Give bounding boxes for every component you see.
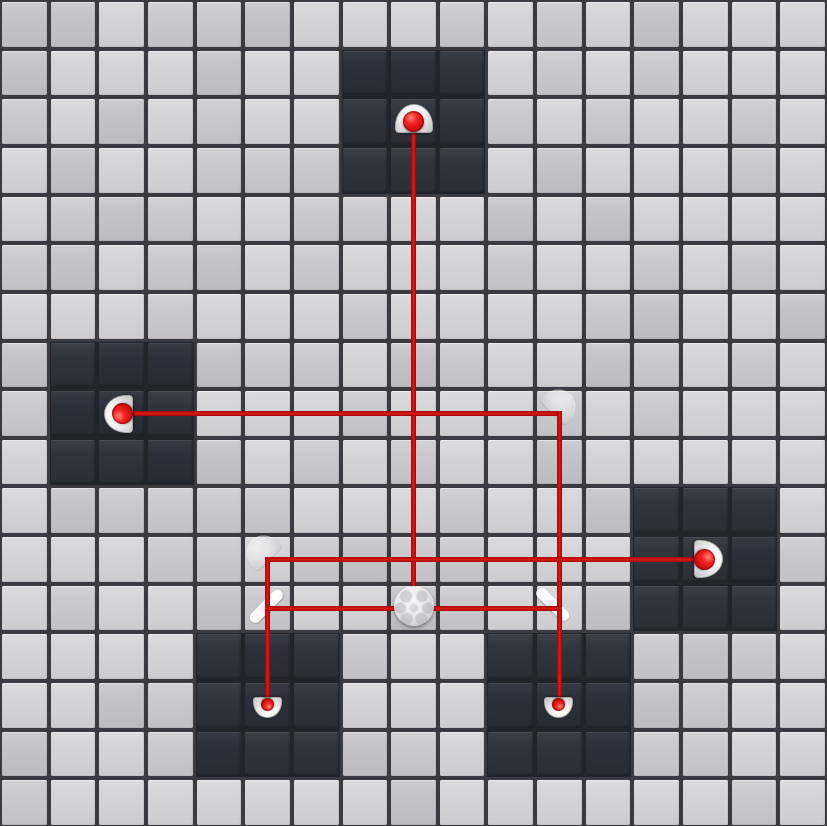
grid-tile[interactable] <box>148 780 193 825</box>
grid-tile[interactable] <box>99 99 144 144</box>
grid-tile[interactable] <box>2 732 47 777</box>
grid-tile[interactable] <box>343 197 388 242</box>
dark-grid-tile[interactable] <box>99 343 144 388</box>
grid-tile[interactable] <box>780 148 825 193</box>
grid-tile[interactable] <box>99 683 144 728</box>
grid-tile[interactable] <box>343 683 388 728</box>
grid-tile[interactable] <box>294 488 339 533</box>
grid-tile[interactable] <box>51 2 96 47</box>
grid-tile[interactable] <box>51 732 96 777</box>
grid-tile[interactable] <box>51 245 96 290</box>
grid-tile[interactable] <box>51 294 96 339</box>
dark-grid-tile[interactable] <box>294 683 339 728</box>
grid-tile[interactable] <box>488 245 533 290</box>
grid-tile[interactable] <box>780 488 825 533</box>
grid-tile[interactable] <box>245 2 290 47</box>
grid-tile[interactable] <box>294 294 339 339</box>
grid-tile[interactable] <box>148 294 193 339</box>
grid-tile[interactable] <box>683 732 728 777</box>
grid-tile[interactable] <box>732 245 777 290</box>
grid-tile[interactable] <box>732 148 777 193</box>
grid-tile[interactable] <box>245 440 290 485</box>
grid-tile[interactable] <box>634 732 679 777</box>
grid-tile[interactable] <box>488 343 533 388</box>
dark-grid-tile[interactable] <box>488 732 533 777</box>
grid-tile[interactable] <box>586 245 631 290</box>
grid-tile[interactable] <box>634 148 679 193</box>
grid-tile[interactable] <box>343 294 388 339</box>
grid-tile[interactable] <box>51 586 96 631</box>
grid-tile[interactable] <box>51 537 96 582</box>
laser-lens <box>111 403 132 424</box>
dark-grid-tile[interactable] <box>732 488 777 533</box>
grid-tile[interactable] <box>683 197 728 242</box>
grid-tile[interactable] <box>245 780 290 825</box>
dark-grid-tile[interactable] <box>732 537 777 582</box>
grid-tile[interactable] <box>197 197 242 242</box>
grid-tile[interactable] <box>586 197 631 242</box>
grid-tile[interactable] <box>732 780 777 825</box>
dark-grid-tile[interactable] <box>634 586 679 631</box>
grid-board <box>0 0 827 826</box>
grid-tile[interactable] <box>51 683 96 728</box>
dark-grid-tile[interactable] <box>732 586 777 631</box>
dark-grid-tile[interactable] <box>197 683 242 728</box>
grid-tile[interactable] <box>732 440 777 485</box>
grid-tile[interactable] <box>634 245 679 290</box>
grid-tile[interactable] <box>683 440 728 485</box>
grid-tile[interactable] <box>732 197 777 242</box>
grid-tile[interactable] <box>391 634 436 679</box>
grid-tile[interactable] <box>197 2 242 47</box>
grid-tile[interactable] <box>391 2 436 47</box>
grid-tile[interactable] <box>586 391 631 436</box>
grid-tile[interactable] <box>440 683 485 728</box>
grid-tile[interactable] <box>2 537 47 582</box>
grid-tile[interactable] <box>634 51 679 96</box>
grid-tile[interactable] <box>634 343 679 388</box>
dark-grid-tile[interactable] <box>683 488 728 533</box>
beam-left-emitter-to-corner <box>119 411 562 416</box>
grid-tile[interactable] <box>683 294 728 339</box>
dark-grid-tile[interactable] <box>343 148 388 193</box>
dark-grid-tile[interactable] <box>683 586 728 631</box>
grid-tile[interactable] <box>780 586 825 631</box>
grid-tile[interactable] <box>343 634 388 679</box>
grid-tile[interactable] <box>294 197 339 242</box>
grid-tile[interactable] <box>148 148 193 193</box>
grid-tile[interactable] <box>391 732 436 777</box>
grid-tile[interactable] <box>440 197 485 242</box>
grid-tile[interactable] <box>634 780 679 825</box>
beam-right-emitter-to-corner <box>265 557 708 562</box>
grid-tile[interactable] <box>148 245 193 290</box>
grid-tile[interactable] <box>99 2 144 47</box>
grid-tile[interactable] <box>2 683 47 728</box>
dark-grid-tile[interactable] <box>294 634 339 679</box>
grid-tile[interactable] <box>148 634 193 679</box>
grid-tile[interactable] <box>780 537 825 582</box>
grid-tile[interactable] <box>683 51 728 96</box>
grid-tile[interactable] <box>99 51 144 96</box>
mirror-bar-glass <box>535 585 572 622</box>
grid-tile[interactable] <box>634 2 679 47</box>
grid-tile[interactable] <box>197 440 242 485</box>
laser-lens <box>403 111 424 132</box>
grid-tile[interactable] <box>780 683 825 728</box>
grid-tile[interactable] <box>683 634 728 679</box>
grid-tile[interactable] <box>51 148 96 193</box>
dark-grid-tile[interactable] <box>51 440 96 485</box>
dark-grid-tile[interactable] <box>294 732 339 777</box>
grid-tile[interactable] <box>99 245 144 290</box>
grid-tile[interactable] <box>2 197 47 242</box>
grid-tile[interactable] <box>2 440 47 485</box>
grid-tile[interactable] <box>2 2 47 47</box>
grid-tile[interactable] <box>586 343 631 388</box>
grid-tile[interactable] <box>683 683 728 728</box>
grid-tile[interactable] <box>586 440 631 485</box>
dark-grid-tile[interactable] <box>488 683 533 728</box>
grid-tile[interactable] <box>148 99 193 144</box>
grid-tile[interactable] <box>488 197 533 242</box>
grid-tile[interactable] <box>683 2 728 47</box>
grid-tile[interactable] <box>732 391 777 436</box>
grid-tile[interactable] <box>51 780 96 825</box>
grid-tile[interactable] <box>148 51 193 96</box>
grid-tile[interactable] <box>294 51 339 96</box>
grid-tile[interactable] <box>732 343 777 388</box>
grid-tile[interactable] <box>732 634 777 679</box>
grid-tile[interactable] <box>780 197 825 242</box>
grid-tile[interactable] <box>780 780 825 825</box>
grid-tile[interactable] <box>634 294 679 339</box>
grid-tile[interactable] <box>294 343 339 388</box>
dark-grid-tile[interactable] <box>51 391 96 436</box>
grid-tile[interactable] <box>440 780 485 825</box>
grid-tile[interactable] <box>51 197 96 242</box>
grid-tile[interactable] <box>2 488 47 533</box>
dark-grid-tile[interactable] <box>343 51 388 96</box>
dark-grid-tile[interactable] <box>586 732 631 777</box>
grid-tile[interactable] <box>148 537 193 582</box>
dark-grid-tile[interactable] <box>440 99 485 144</box>
grid-tile[interactable] <box>99 780 144 825</box>
grid-tile[interactable] <box>732 51 777 96</box>
grid-tile[interactable] <box>586 586 631 631</box>
dark-grid-tile[interactable] <box>245 732 290 777</box>
grid-tile[interactable] <box>488 294 533 339</box>
laser-receiver-bottom-left[interactable] <box>252 689 284 721</box>
grid-tile[interactable] <box>148 586 193 631</box>
grid-tile[interactable] <box>245 294 290 339</box>
grid-tile[interactable] <box>537 197 582 242</box>
grid-tile[interactable] <box>488 780 533 825</box>
grid-tile[interactable] <box>537 780 582 825</box>
grid-tile[interactable] <box>440 245 485 290</box>
grid-tile[interactable] <box>197 343 242 388</box>
grid-tile[interactable] <box>488 148 533 193</box>
grid-tile[interactable] <box>488 488 533 533</box>
game-viewport <box>0 0 827 826</box>
grid-tile[interactable] <box>732 683 777 728</box>
grid-tile[interactable] <box>780 245 825 290</box>
grid-tile[interactable] <box>732 99 777 144</box>
grid-tile[interactable] <box>488 99 533 144</box>
grid-tile[interactable] <box>488 440 533 485</box>
grid-tile[interactable] <box>99 732 144 777</box>
grid-tile[interactable] <box>197 245 242 290</box>
grid-tile[interactable] <box>683 343 728 388</box>
grid-tile[interactable] <box>2 245 47 290</box>
grid-tile[interactable] <box>537 148 582 193</box>
grid-tile[interactable] <box>197 51 242 96</box>
grid-tile[interactable] <box>634 391 679 436</box>
grid-tile[interactable] <box>294 245 339 290</box>
dark-grid-tile[interactable] <box>586 634 631 679</box>
grid-tile[interactable] <box>51 634 96 679</box>
grid-tile[interactable] <box>732 732 777 777</box>
grid-tile[interactable] <box>488 51 533 96</box>
grid-tile[interactable] <box>537 99 582 144</box>
grid-tile[interactable] <box>440 294 485 339</box>
dark-grid-tile[interactable] <box>586 683 631 728</box>
grid-tile[interactable] <box>683 99 728 144</box>
grid-tile[interactable] <box>440 2 485 47</box>
grid-tile[interactable] <box>343 440 388 485</box>
grid-tile[interactable] <box>634 634 679 679</box>
grid-tile[interactable] <box>343 732 388 777</box>
dark-grid-tile[interactable] <box>148 343 193 388</box>
grid-tile[interactable] <box>488 2 533 47</box>
grid-tile[interactable] <box>2 148 47 193</box>
grid-tile[interactable] <box>780 440 825 485</box>
grid-tile[interactable] <box>245 488 290 533</box>
dark-grid-tile[interactable] <box>440 148 485 193</box>
dark-grid-tile[interactable] <box>148 440 193 485</box>
grid-tile[interactable] <box>780 294 825 339</box>
grid-tile[interactable] <box>245 148 290 193</box>
grid-tile[interactable] <box>634 683 679 728</box>
grid-tile[interactable] <box>780 391 825 436</box>
grid-tile[interactable] <box>391 780 436 825</box>
grid-tile[interactable] <box>245 197 290 242</box>
grid-tile[interactable] <box>294 780 339 825</box>
grid-tile[interactable] <box>197 294 242 339</box>
laser-emitter-top[interactable] <box>392 100 436 144</box>
grid-tile[interactable] <box>780 343 825 388</box>
grid-tile[interactable] <box>732 2 777 47</box>
grid-tile[interactable] <box>586 99 631 144</box>
grid-tile[interactable] <box>294 2 339 47</box>
grid-tile[interactable] <box>537 294 582 339</box>
grid-tile[interactable] <box>683 245 728 290</box>
grid-tile[interactable] <box>586 148 631 193</box>
laser-emitter-right[interactable] <box>683 537 727 581</box>
grid-tile[interactable] <box>2 391 47 436</box>
grid-tile[interactable] <box>343 488 388 533</box>
grid-tile[interactable] <box>440 440 485 485</box>
grid-tile[interactable] <box>440 634 485 679</box>
splitter-ball[interactable] <box>394 586 434 626</box>
grid-tile[interactable] <box>2 586 47 631</box>
grid-tile[interactable] <box>732 294 777 339</box>
grid-tile[interactable] <box>780 634 825 679</box>
grid-tile[interactable] <box>99 634 144 679</box>
grid-tile[interactable] <box>343 245 388 290</box>
grid-tile[interactable] <box>780 2 825 47</box>
grid-tile[interactable] <box>634 440 679 485</box>
grid-tile[interactable] <box>294 148 339 193</box>
grid-tile[interactable] <box>51 51 96 96</box>
dark-grid-tile[interactable] <box>51 343 96 388</box>
grid-tile[interactable] <box>2 780 47 825</box>
grid-tile[interactable] <box>148 488 193 533</box>
grid-tile[interactable] <box>586 780 631 825</box>
dark-grid-tile[interactable] <box>440 51 485 96</box>
grid-tile[interactable] <box>2 51 47 96</box>
grid-tile[interactable] <box>586 51 631 96</box>
dark-grid-tile[interactable] <box>537 732 582 777</box>
grid-tile[interactable] <box>51 99 96 144</box>
grid-tile[interactable] <box>99 148 144 193</box>
grid-tile[interactable] <box>99 537 144 582</box>
grid-tile[interactable] <box>197 99 242 144</box>
grid-tile[interactable] <box>780 732 825 777</box>
grid-tile[interactable] <box>245 99 290 144</box>
grid-tile[interactable] <box>2 634 47 679</box>
grid-tile[interactable] <box>148 732 193 777</box>
grid-tile[interactable] <box>197 148 242 193</box>
grid-tile[interactable] <box>245 245 290 290</box>
grid-tile[interactable] <box>148 683 193 728</box>
grid-tile[interactable] <box>537 51 582 96</box>
grid-tile[interactable] <box>683 148 728 193</box>
grid-tile[interactable] <box>343 2 388 47</box>
grid-tile[interactable] <box>780 99 825 144</box>
dark-grid-tile[interactable] <box>391 51 436 96</box>
grid-tile[interactable] <box>586 294 631 339</box>
grid-tile[interactable] <box>343 343 388 388</box>
dark-grid-tile[interactable] <box>99 440 144 485</box>
grid-tile[interactable] <box>537 245 582 290</box>
grid-tile[interactable] <box>683 391 728 436</box>
grid-tile[interactable] <box>586 488 631 533</box>
grid-tile[interactable] <box>537 2 582 47</box>
laser-emitter-left[interactable] <box>100 392 144 436</box>
grid-tile[interactable] <box>197 537 242 582</box>
grid-tile[interactable] <box>391 683 436 728</box>
grid-tile[interactable] <box>245 343 290 388</box>
grid-tile[interactable] <box>780 51 825 96</box>
grid-tile[interactable] <box>148 2 193 47</box>
dark-grid-tile[interactable] <box>488 634 533 679</box>
grid-tile[interactable] <box>99 488 144 533</box>
dark-grid-tile[interactable] <box>197 732 242 777</box>
grid-tile[interactable] <box>99 197 144 242</box>
beam-top-emitter-to-ball <box>411 119 416 610</box>
grid-tile[interactable] <box>586 2 631 47</box>
grid-tile[interactable] <box>294 440 339 485</box>
grid-tile[interactable] <box>2 294 47 339</box>
dark-grid-tile[interactable] <box>343 99 388 144</box>
grid-tile[interactable] <box>2 99 47 144</box>
grid-tile[interactable] <box>634 99 679 144</box>
grid-tile[interactable] <box>99 586 144 631</box>
grid-tile[interactable] <box>197 586 242 631</box>
grid-tile[interactable] <box>2 343 47 388</box>
beam-corner-to-left-receiver <box>265 557 270 708</box>
grid-tile[interactable] <box>51 488 96 533</box>
grid-tile[interactable] <box>683 780 728 825</box>
dark-grid-tile[interactable] <box>634 488 679 533</box>
grid-tile[interactable] <box>148 197 193 242</box>
grid-tile[interactable] <box>294 99 339 144</box>
grid-tile[interactable] <box>634 197 679 242</box>
grid-tile[interactable] <box>197 780 242 825</box>
grid-tile[interactable] <box>99 294 144 339</box>
dark-grid-tile[interactable] <box>197 634 242 679</box>
grid-tile[interactable] <box>343 780 388 825</box>
grid-tile[interactable] <box>440 343 485 388</box>
laser-receiver-bottom-right[interactable] <box>543 689 575 721</box>
grid-tile[interactable] <box>440 732 485 777</box>
grid-tile[interactable] <box>245 51 290 96</box>
grid-tile[interactable] <box>440 488 485 533</box>
grid-tile[interactable] <box>197 488 242 533</box>
